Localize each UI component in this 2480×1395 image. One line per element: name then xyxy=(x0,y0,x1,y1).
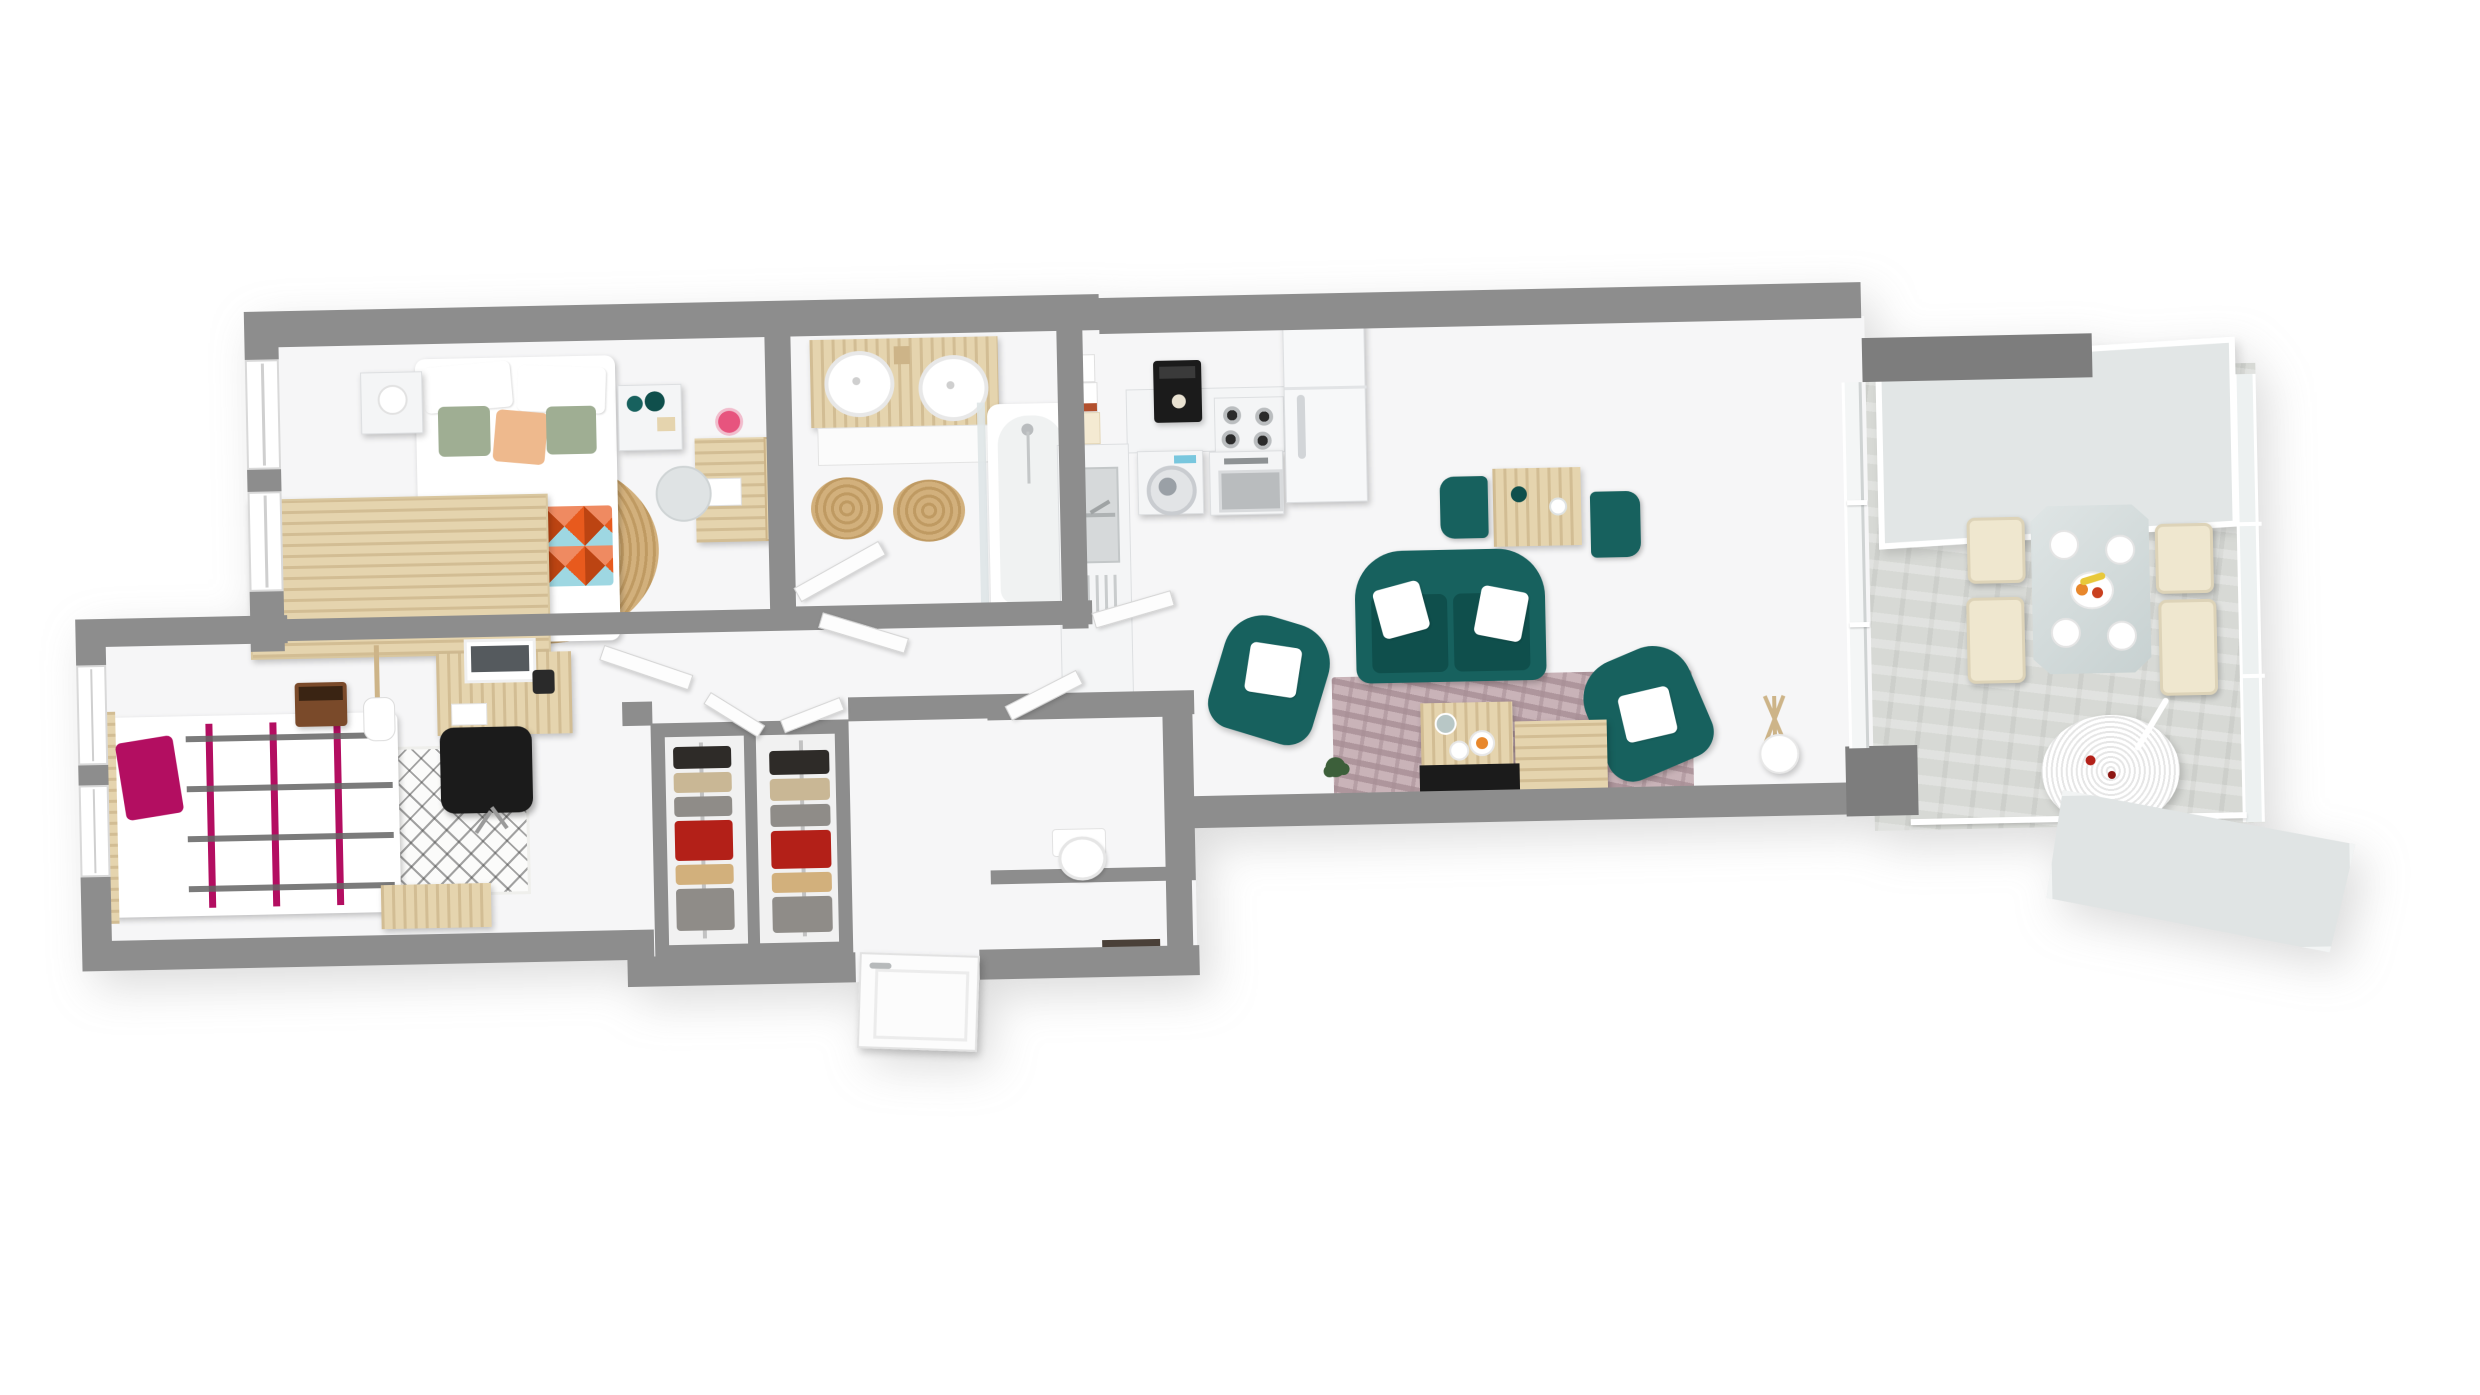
vanity-counter xyxy=(809,336,999,428)
wall-sunroom-corner xyxy=(1845,745,1918,816)
wall-sunroom-top xyxy=(1862,333,2093,382)
tv-bench xyxy=(1420,763,1521,791)
dining-chair xyxy=(1966,517,2025,584)
armchair-cushion xyxy=(1617,685,1679,744)
wall-bottom-center-left xyxy=(627,952,856,987)
monitor-screen xyxy=(471,645,530,672)
tripod-floor-lamp xyxy=(1750,685,1802,782)
electric-guitar xyxy=(362,645,394,742)
plate xyxy=(2049,530,2080,561)
coffee-cup-saucer xyxy=(1449,740,1469,760)
banana xyxy=(2079,572,2106,586)
lamp-globe xyxy=(1759,733,1800,774)
plate xyxy=(2107,620,2138,651)
clothes-red xyxy=(675,820,734,861)
clothes-beige xyxy=(674,772,732,793)
floor-plan-canvas xyxy=(0,0,2480,1395)
room-walk-in-closet xyxy=(650,719,853,959)
glass-door-mullion xyxy=(1850,622,1870,627)
plate-pancakes xyxy=(1469,730,1496,757)
front-door-panel xyxy=(873,969,969,1042)
dining-chair xyxy=(2155,523,2214,594)
window-master xyxy=(248,491,284,592)
sink-drain xyxy=(852,377,860,385)
pancakes xyxy=(1476,737,1488,749)
soap-tray xyxy=(894,346,910,364)
nightstand-right xyxy=(617,384,682,451)
egg-chair-cushion-dot xyxy=(2085,755,2095,765)
clothes-hanger-wood xyxy=(772,872,832,893)
patterned-duvet xyxy=(185,720,395,908)
apartment-render xyxy=(0,0,2480,1395)
dining-chair xyxy=(1966,597,2026,684)
window-bedroom2 xyxy=(76,665,108,766)
breakfast-chair xyxy=(1439,476,1488,539)
front-door xyxy=(857,952,980,1052)
clothes-red xyxy=(771,830,832,869)
window-bedroom2 xyxy=(79,785,111,878)
office-chair xyxy=(440,726,534,814)
plate xyxy=(2105,534,2136,565)
wall-hall-stub xyxy=(622,701,652,726)
loveseat-sofa xyxy=(1354,548,1547,684)
bedside-clock xyxy=(657,417,675,431)
monitor xyxy=(464,638,537,683)
glass-dining-table xyxy=(2030,504,2151,674)
pink-orchid xyxy=(718,411,740,433)
bed-pillow-sage xyxy=(546,406,597,455)
coffee-table xyxy=(1420,701,1513,769)
armchair-left xyxy=(1202,605,1340,751)
fruit-bowl xyxy=(2070,571,2115,610)
window-master xyxy=(245,359,281,470)
room-living xyxy=(1154,316,1874,821)
teal-vase xyxy=(645,391,665,411)
vanity-cabinet xyxy=(817,424,1000,466)
bed-pillow-sage xyxy=(438,406,491,457)
amp-grill xyxy=(299,686,343,701)
clothes-beige xyxy=(770,778,830,801)
keyboard xyxy=(451,703,487,726)
tilted-glass-panel xyxy=(2044,784,2357,958)
carafe xyxy=(1511,486,1527,502)
desk-organizer xyxy=(532,670,554,694)
clothes-gray xyxy=(674,796,732,817)
clothes-dark xyxy=(769,750,829,775)
magenta-pillow xyxy=(115,735,185,821)
breakfast-table xyxy=(1492,467,1582,547)
mug xyxy=(1549,497,1567,515)
teapot xyxy=(1434,713,1456,735)
guitar-amp xyxy=(295,682,348,727)
bath-jute-rug xyxy=(892,479,965,542)
armchair-cushion xyxy=(1244,641,1303,698)
sink-drain xyxy=(946,381,954,389)
guitar-body xyxy=(363,697,396,742)
bedroom2-desk xyxy=(436,651,573,736)
storage-bench xyxy=(381,883,492,929)
egg-chair-cushion-dot xyxy=(2108,771,2116,779)
front-door-handle xyxy=(869,962,891,969)
room-sunroom xyxy=(1865,328,2358,978)
room-bedroom-2 xyxy=(75,612,642,964)
closet-divider xyxy=(744,735,760,943)
glass-mullion xyxy=(2240,522,2262,526)
toilet-bowl xyxy=(1058,836,1107,881)
table-lamp xyxy=(377,385,408,416)
nightstand-left xyxy=(360,371,423,434)
bed-pillow-peach xyxy=(492,409,548,465)
clothes-gray xyxy=(772,896,833,933)
sofa-cushion xyxy=(1473,585,1530,643)
apple-fruit xyxy=(2092,587,2103,598)
glass-mullion xyxy=(2243,674,2265,678)
glass-door-mullion xyxy=(1847,500,1867,505)
clothes-gray xyxy=(770,804,830,827)
glass-wall-right xyxy=(2234,374,2265,822)
clothes-gray xyxy=(676,888,735,931)
egg-chair-arm xyxy=(2134,697,2170,752)
plate xyxy=(2051,618,2082,649)
bath-jute-rug xyxy=(810,477,883,540)
breakfast-chair xyxy=(1590,491,1641,558)
single-bed xyxy=(107,712,401,918)
wall-step xyxy=(75,615,288,647)
dining-chair xyxy=(2158,599,2218,696)
clothes-hanger-wood xyxy=(675,864,733,885)
teal-vase xyxy=(627,396,643,412)
vessel-sink xyxy=(824,350,895,417)
clothes-dark xyxy=(673,746,731,769)
nesting-side-table xyxy=(1515,720,1608,794)
